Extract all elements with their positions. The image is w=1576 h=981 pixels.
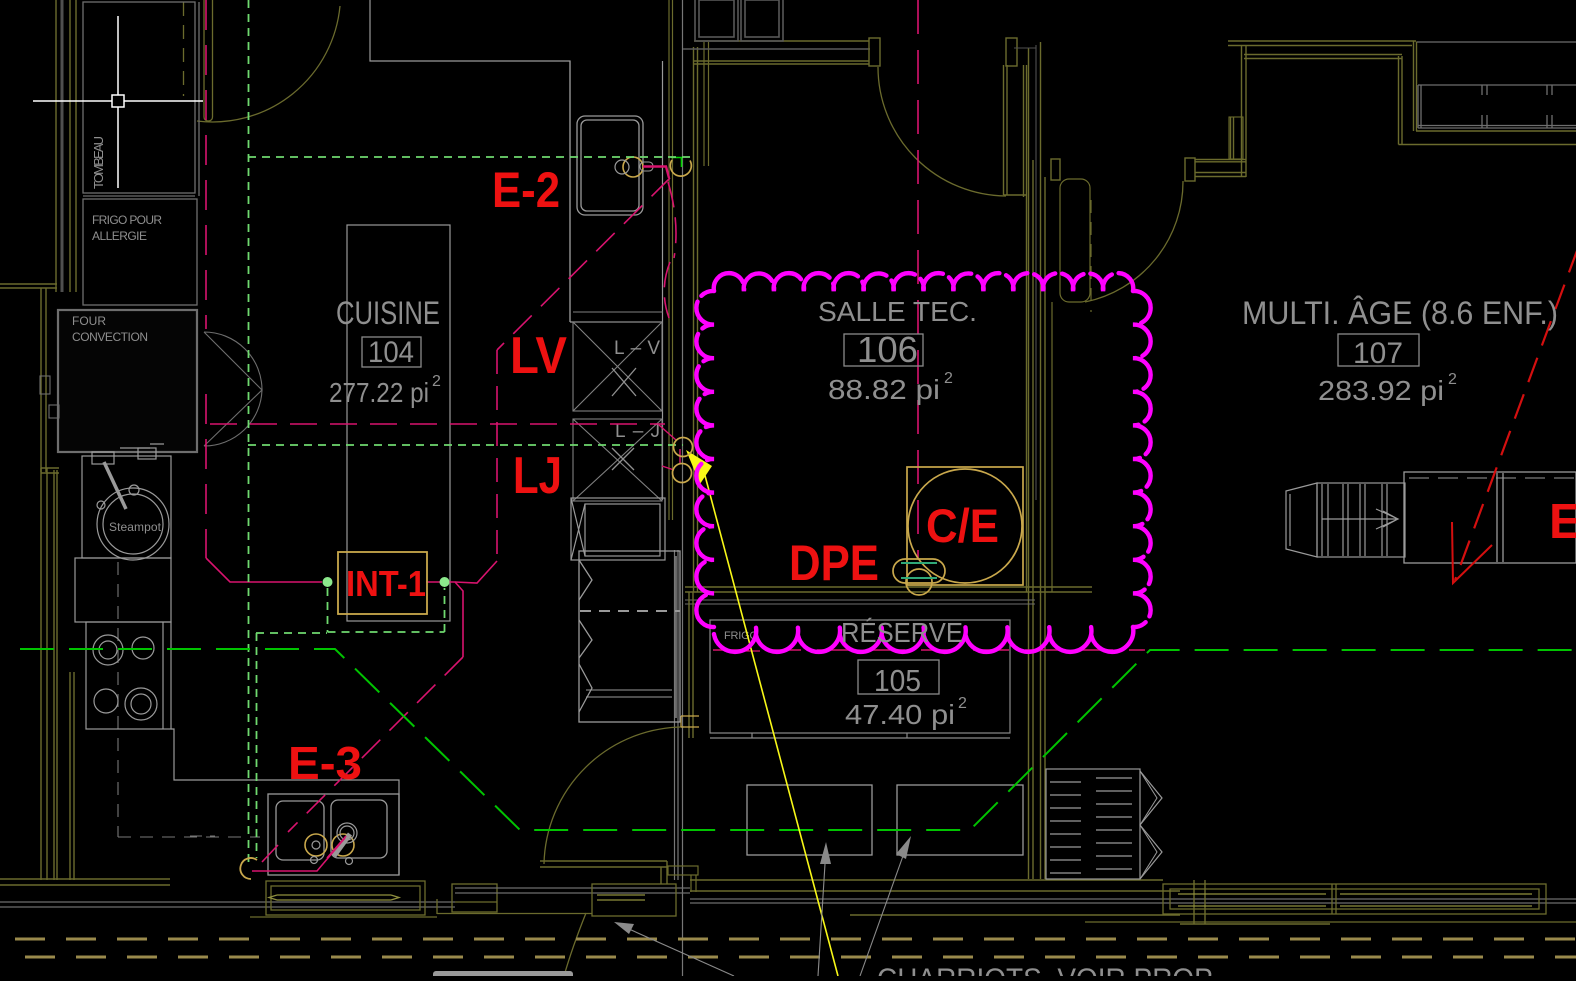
svg-text:CUISINE: CUISINE: [336, 295, 440, 331]
svg-text:E-2: E-2: [492, 162, 560, 218]
svg-text:ALLERGIE: ALLERGIE: [92, 229, 147, 243]
svg-text:L–V: L–V: [614, 338, 660, 359]
svg-text:2: 2: [958, 695, 967, 712]
svg-text:2: 2: [1448, 371, 1457, 388]
svg-text:SALLE TEC.: SALLE TEC.: [818, 296, 977, 327]
svg-text:MULTI. ÂGE (8.6 ENF.): MULTI. ÂGE (8.6 ENF.): [1242, 295, 1558, 331]
svg-text:47.40 pi: 47.40 pi: [845, 699, 955, 730]
svg-text:106: 106: [857, 329, 918, 370]
svg-text:2: 2: [944, 370, 953, 387]
svg-text:FOUR: FOUR: [72, 314, 106, 328]
svg-text:88.82 pi: 88.82 pi: [828, 374, 940, 405]
svg-text:DPE: DPE: [789, 535, 879, 591]
svg-text:107: 107: [1353, 337, 1403, 370]
svg-text:277.22 pi: 277.22 pi: [329, 377, 429, 408]
svg-text:105: 105: [874, 663, 921, 698]
svg-text:FRIGO POUR: FRIGO POUR: [92, 213, 162, 227]
svg-text:LV: LV: [510, 327, 567, 385]
svg-text:C/E: C/E: [926, 499, 999, 552]
svg-text:CHARRIOTS, VOIR PROP.: CHARRIOTS, VOIR PROP.: [877, 963, 1217, 976]
svg-text:2: 2: [432, 373, 441, 390]
svg-text:CONVECTION: CONVECTION: [72, 330, 148, 344]
svg-text:E-3: E-3: [288, 737, 362, 789]
svg-text:Steampot: Steampot: [109, 520, 162, 534]
svg-text:INT-1: INT-1: [346, 563, 426, 604]
svg-text:104: 104: [368, 336, 414, 369]
svg-text:283.92 pi: 283.92 pi: [1318, 375, 1444, 406]
svg-text:E: E: [1549, 495, 1576, 549]
svg-text:TOMBEAU: TOMBEAU: [91, 136, 106, 189]
svg-text:RÉSERVE: RÉSERVE: [841, 617, 963, 648]
svg-text:LJ: LJ: [513, 447, 562, 505]
